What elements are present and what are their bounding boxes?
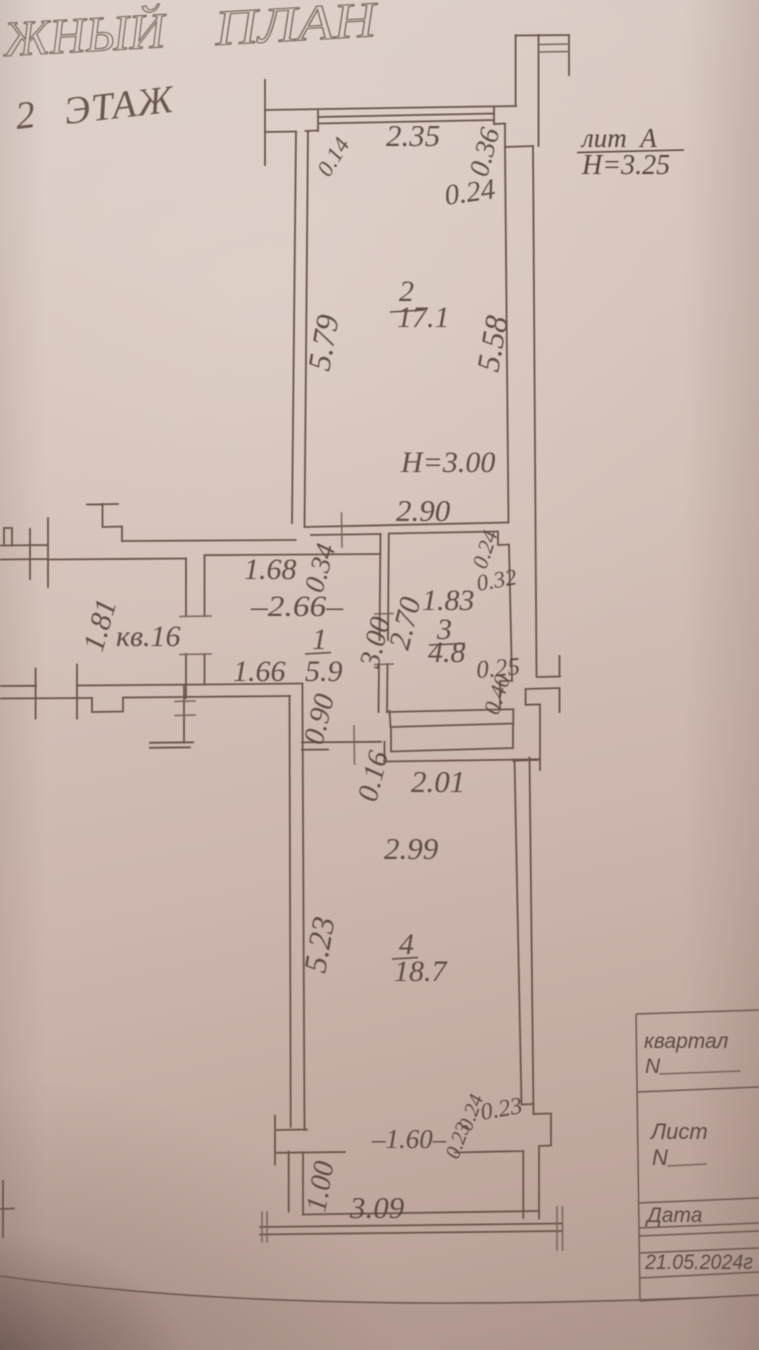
svg-text:17.1: 17.1 — [397, 301, 450, 334]
svg-text:N: N — [645, 1055, 661, 1078]
svg-text:ПЛАН: ПЛАН — [212, 0, 380, 56]
svg-text:2.70: 2.70 — [383, 594, 428, 653]
svg-text:2.90: 2.90 — [396, 493, 451, 528]
svg-text:Лист: Лист — [649, 1119, 708, 1144]
svg-text:2.35: 2.35 — [386, 118, 440, 153]
svg-text:0.16: 0.16 — [352, 747, 395, 804]
svg-text:18.7: 18.7 — [394, 955, 449, 988]
svg-text:лит А: лит А — [580, 123, 657, 153]
svg-text:1.68: 1.68 — [244, 553, 297, 586]
svg-text:N: N — [652, 1145, 668, 1170]
svg-text:1: 1 — [312, 623, 327, 656]
svg-text:H=3.00: H=3.00 — [400, 446, 495, 479]
svg-text:1.66: 1.66 — [233, 655, 286, 688]
svg-text:1.00: 1.00 — [300, 1158, 340, 1214]
svg-text:0.14: 0.14 — [312, 133, 355, 180]
svg-text:ЭТАЖ: ЭТАЖ — [62, 78, 177, 133]
svg-text:5.9: 5.9 — [305, 655, 343, 688]
svg-text:ЖНЫЙ: ЖНЫЙ — [0, 2, 169, 67]
svg-text:0.24: 0.24 — [467, 527, 503, 571]
svg-text:0.24: 0.24 — [443, 173, 498, 212]
svg-text:0.23: 0.23 — [479, 1093, 525, 1126]
svg-text:3.09: 3.09 — [349, 1190, 404, 1225]
svg-text:2: 2 — [13, 93, 37, 138]
svg-text:–1.60–: –1.60– — [371, 1124, 447, 1154]
svg-text:Дата: Дата — [645, 1204, 702, 1227]
svg-text:0.90: 0.90 — [298, 690, 341, 747]
svg-text:квартал: квартал — [644, 1030, 728, 1053]
svg-text:4.8: 4.8 — [428, 636, 466, 669]
svg-text:2.01: 2.01 — [411, 764, 465, 799]
svg-text:0.34: 0.34 — [299, 540, 342, 596]
svg-text:кв.16: кв.16 — [116, 620, 181, 653]
svg-text:0.36: 0.36 — [464, 124, 507, 179]
svg-text:2.99: 2.99 — [384, 831, 438, 866]
svg-text:–2.66–: –2.66– — [250, 590, 344, 623]
svg-text:Н=3.25: Н=3.25 — [581, 150, 670, 181]
svg-text:21.05.2024г: 21.05.2024г — [644, 1251, 753, 1274]
